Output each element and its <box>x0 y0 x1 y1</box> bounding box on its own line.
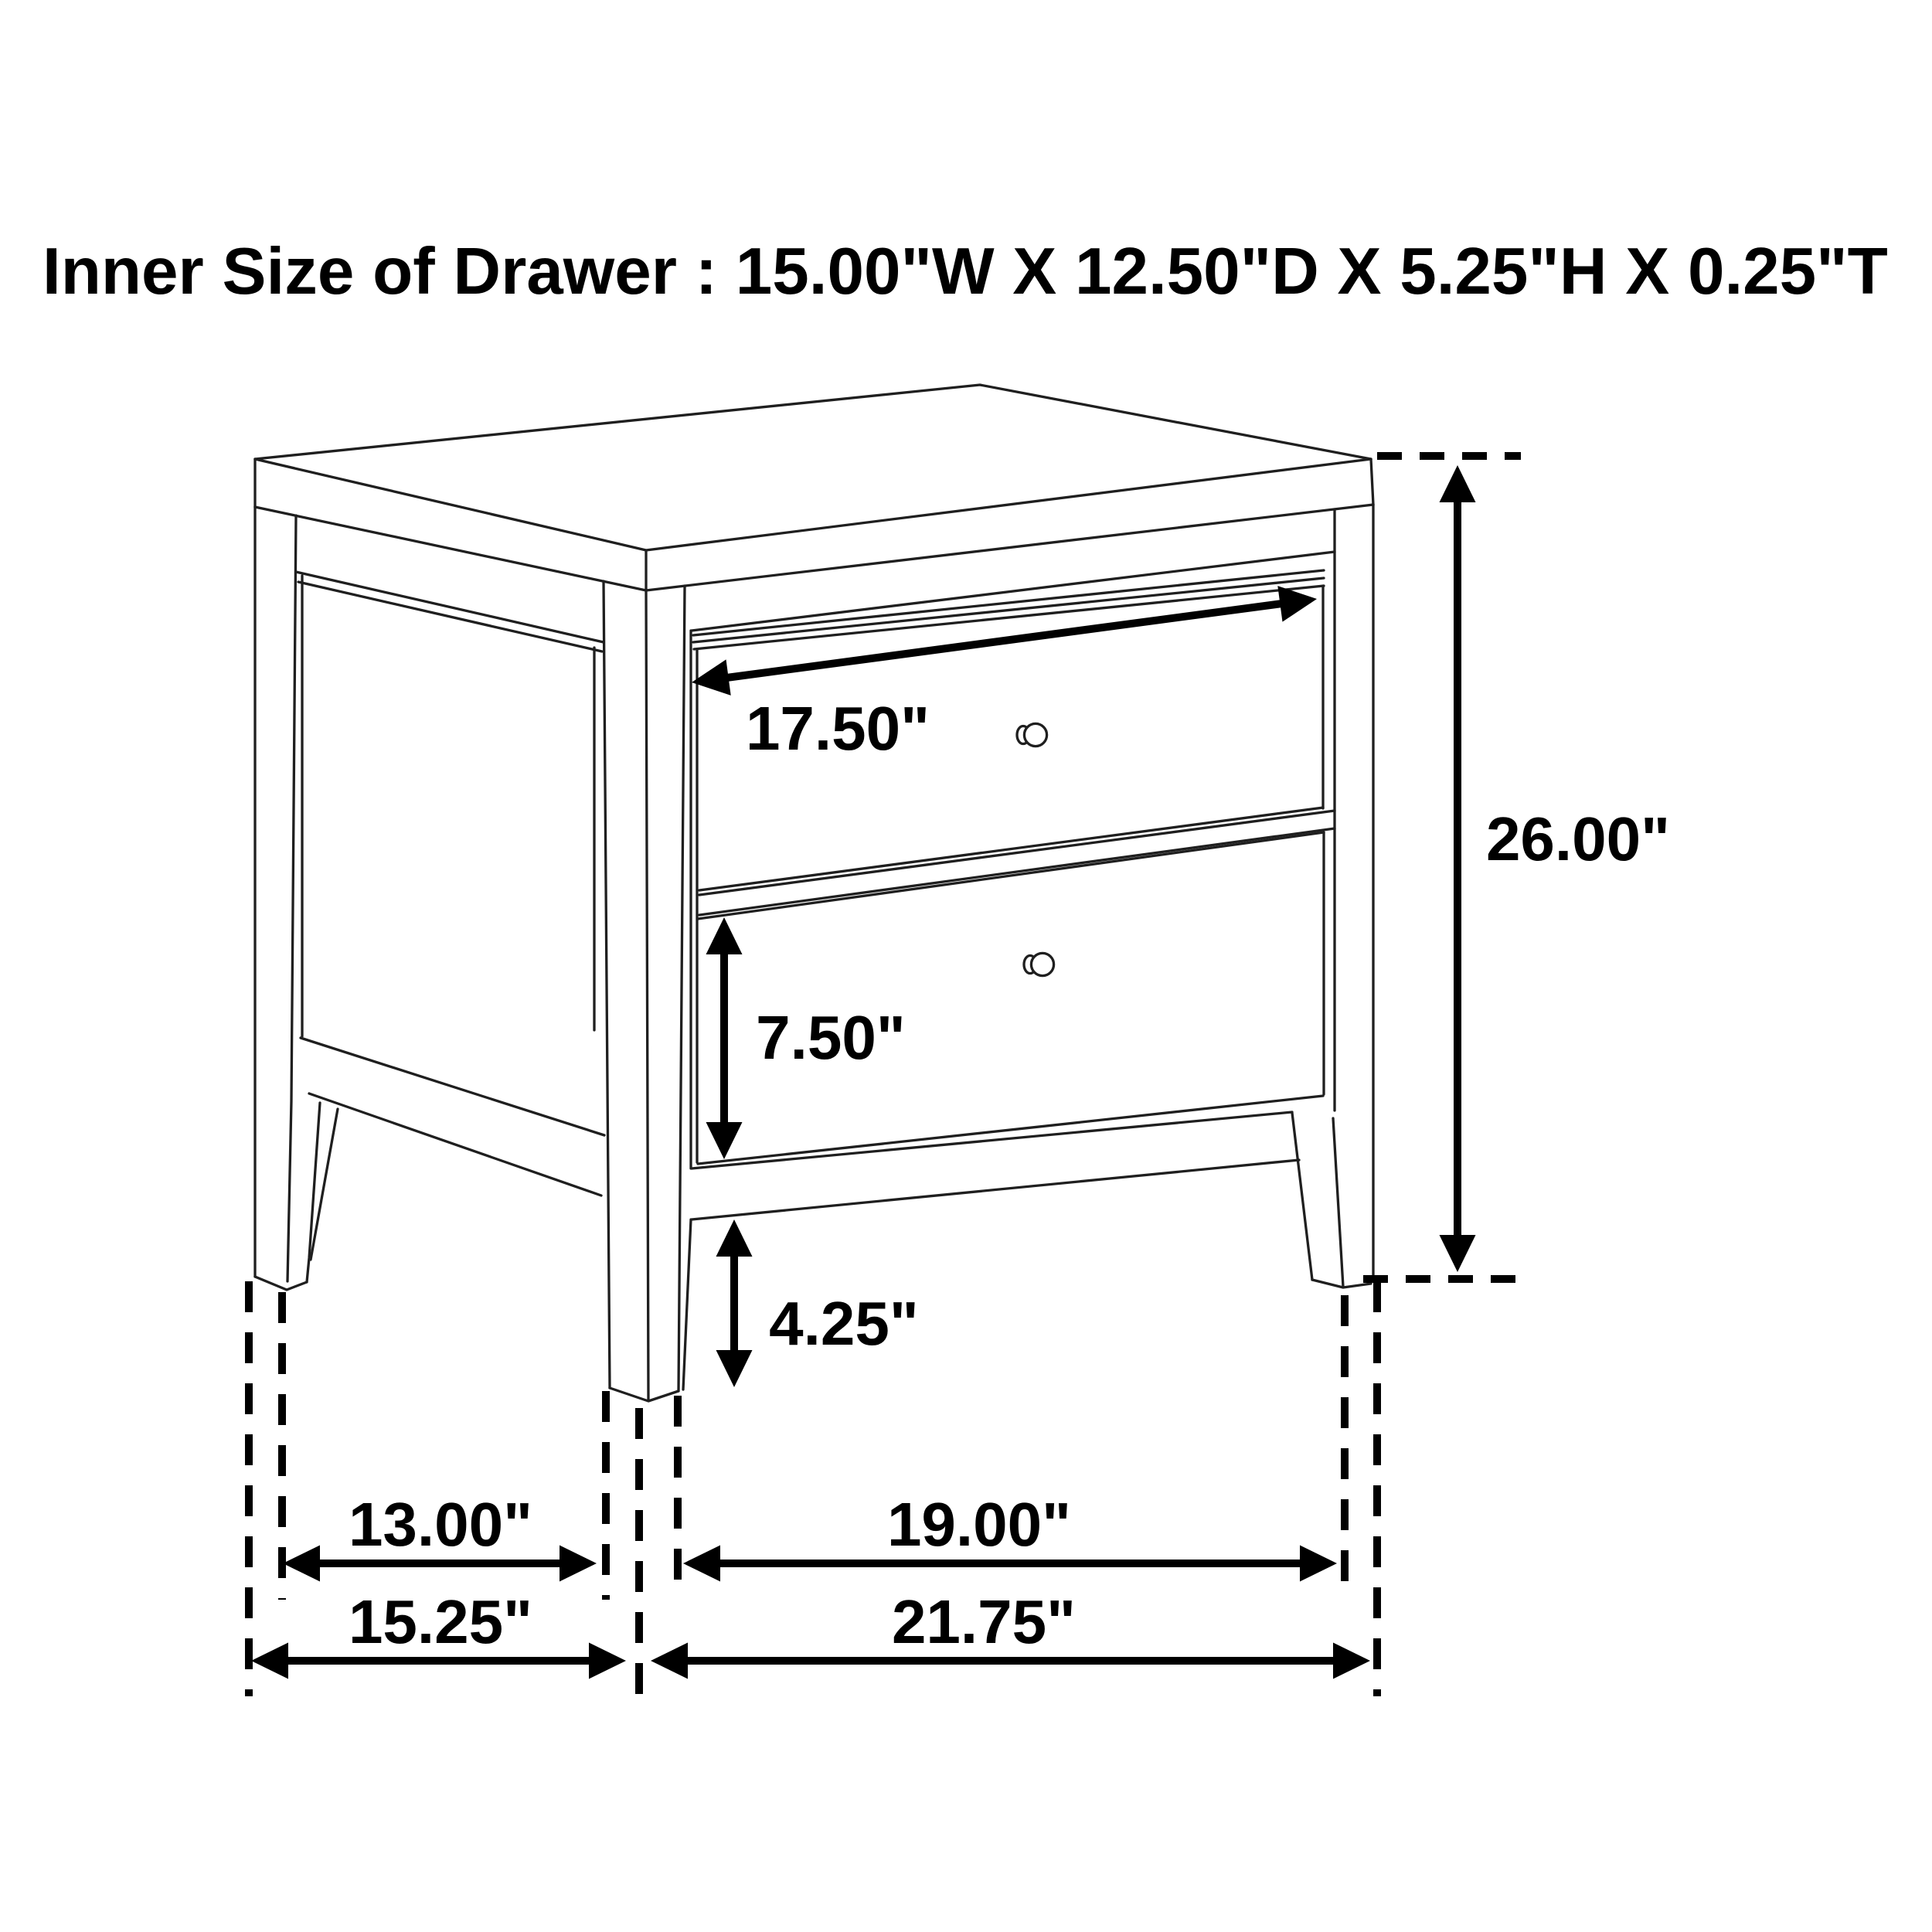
svg-text:4.25": 4.25" <box>769 1289 919 1358</box>
svg-text:26.00": 26.00" <box>1486 804 1670 873</box>
svg-text:Inner Size of Drawer : 15.00"W: Inner Size of Drawer : 15.00"W X 12.50"D… <box>43 235 1888 308</box>
svg-text:19.00": 19.00" <box>887 1490 1071 1559</box>
svg-text:21.75": 21.75" <box>892 1587 1076 1656</box>
svg-text:15.25": 15.25" <box>349 1587 532 1656</box>
svg-text:7.50": 7.50" <box>756 1003 906 1072</box>
svg-text:13.00": 13.00" <box>349 1490 532 1559</box>
svg-text:17.50": 17.50" <box>746 694 930 763</box>
